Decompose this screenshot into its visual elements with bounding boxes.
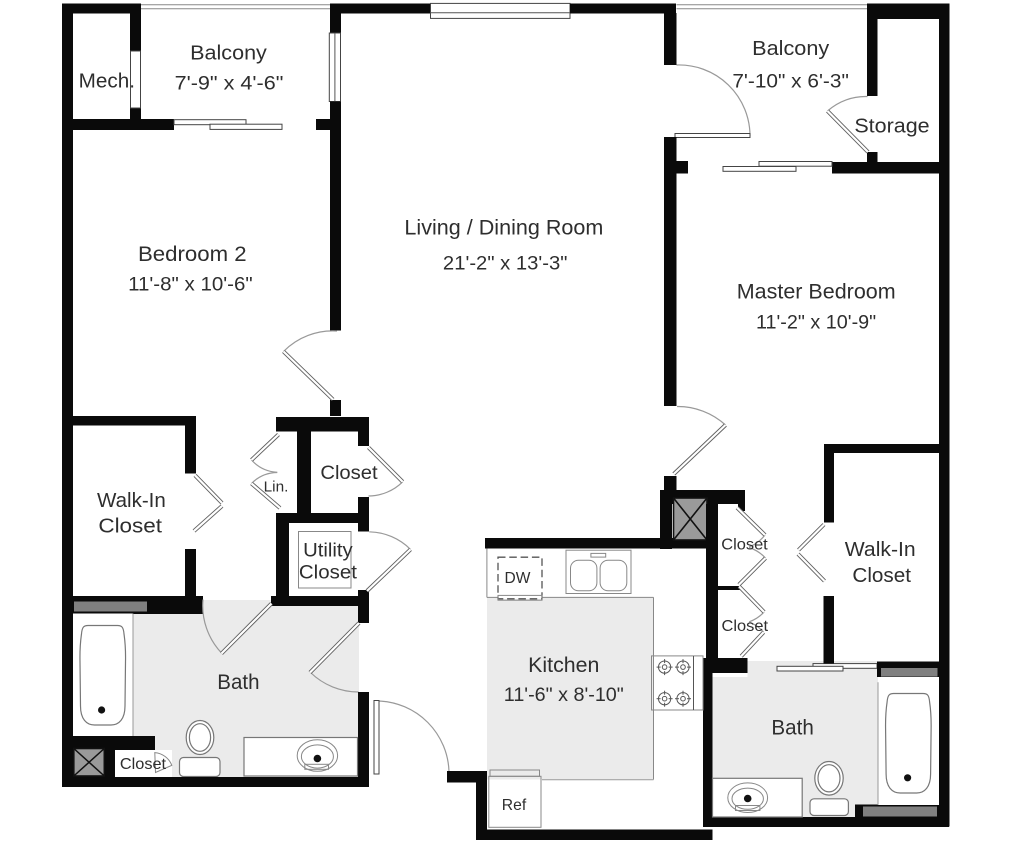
svg-text:DW: DW	[505, 570, 532, 587]
svg-text:Closet: Closet	[320, 463, 378, 484]
svg-text:Living / Dining Room: Living / Dining Room	[404, 217, 603, 240]
svg-text:Balcony: Balcony	[752, 37, 830, 60]
svg-text:Bedroom 2: Bedroom 2	[138, 243, 247, 266]
svg-text:11'-8" x 10'-6": 11'-8" x 10'-6"	[128, 275, 253, 296]
svg-text:Closet: Closet	[98, 516, 162, 538]
svg-text:Closet: Closet	[721, 536, 768, 553]
svg-text:Bath: Bath	[771, 716, 813, 740]
svg-text:Closet: Closet	[852, 565, 911, 587]
svg-text:Closet: Closet	[120, 756, 167, 773]
svg-text:Closet: Closet	[299, 562, 358, 583]
svg-text:Walk-In: Walk-In	[845, 539, 916, 561]
svg-text:Master Bedroom: Master Bedroom	[737, 281, 896, 304]
svg-text:Mech.: Mech.	[79, 71, 135, 93]
svg-text:Balcony: Balcony	[190, 42, 267, 65]
svg-text:7'-10" x 6'-3": 7'-10" x 6'-3"	[732, 71, 849, 92]
svg-text:Walk-In: Walk-In	[97, 490, 166, 512]
svg-text:Storage: Storage	[854, 116, 929, 138]
svg-text:Closet: Closet	[722, 618, 769, 635]
svg-text:Lin.: Lin.	[264, 478, 289, 495]
svg-text:11'-6" x 8'-10": 11'-6" x 8'-10"	[504, 685, 624, 706]
svg-text:11'-2" x 10'-9": 11'-2" x 10'-9"	[756, 312, 876, 333]
svg-text:Ref: Ref	[502, 797, 527, 814]
svg-text:Utility: Utility	[303, 540, 353, 561]
svg-text:Kitchen: Kitchen	[528, 654, 599, 677]
svg-text:21'-2" x 13'-3": 21'-2" x 13'-3"	[443, 254, 568, 275]
svg-text:Bath: Bath	[217, 670, 259, 694]
svg-text:7'-9" x 4'-6": 7'-9" x 4'-6"	[175, 73, 284, 94]
